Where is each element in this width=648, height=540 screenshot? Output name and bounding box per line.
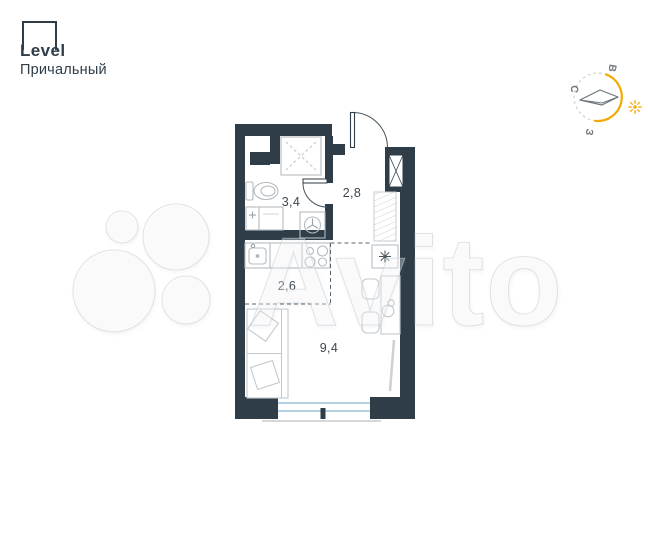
sun-icon	[628, 100, 642, 114]
compass-label-north: С	[567, 84, 580, 94]
wall-entrance-left-jamb	[333, 144, 345, 155]
shower-icon	[281, 137, 321, 175]
wall-niche-block	[250, 152, 270, 165]
bathroom-door-icon	[303, 179, 327, 207]
window-icon	[262, 403, 381, 421]
compass-label-east: В	[605, 63, 618, 73]
hallway-area-label: 2,8	[343, 186, 362, 200]
ventilation-shaft-icon	[389, 155, 403, 187]
compass-label-west: З	[582, 128, 595, 137]
avito-watermark-text: Avito	[248, 211, 563, 352]
bathroom-area-label: 3,4	[282, 195, 301, 209]
window-mullion	[321, 408, 326, 419]
entrance-door-icon	[351, 113, 388, 148]
toilet-icon	[246, 182, 278, 200]
wall-bottom-right	[370, 397, 415, 419]
wall-top-bathroom	[235, 124, 332, 136]
floor-plan-image: Level Причальный	[0, 0, 648, 540]
wall-bottom-left	[235, 397, 278, 419]
wall-niche-pier	[270, 136, 280, 164]
compass-icon: В С З	[567, 63, 641, 136]
wall-bathroom-right-upper	[325, 136, 333, 183]
wall-left	[235, 124, 245, 419]
avito-watermark: Avito	[73, 204, 563, 352]
floor-plan-drawing: 3,4 2,8 2,6 9,4 Avito В С З	[0, 0, 648, 540]
compass-needle-icon	[580, 90, 618, 105]
